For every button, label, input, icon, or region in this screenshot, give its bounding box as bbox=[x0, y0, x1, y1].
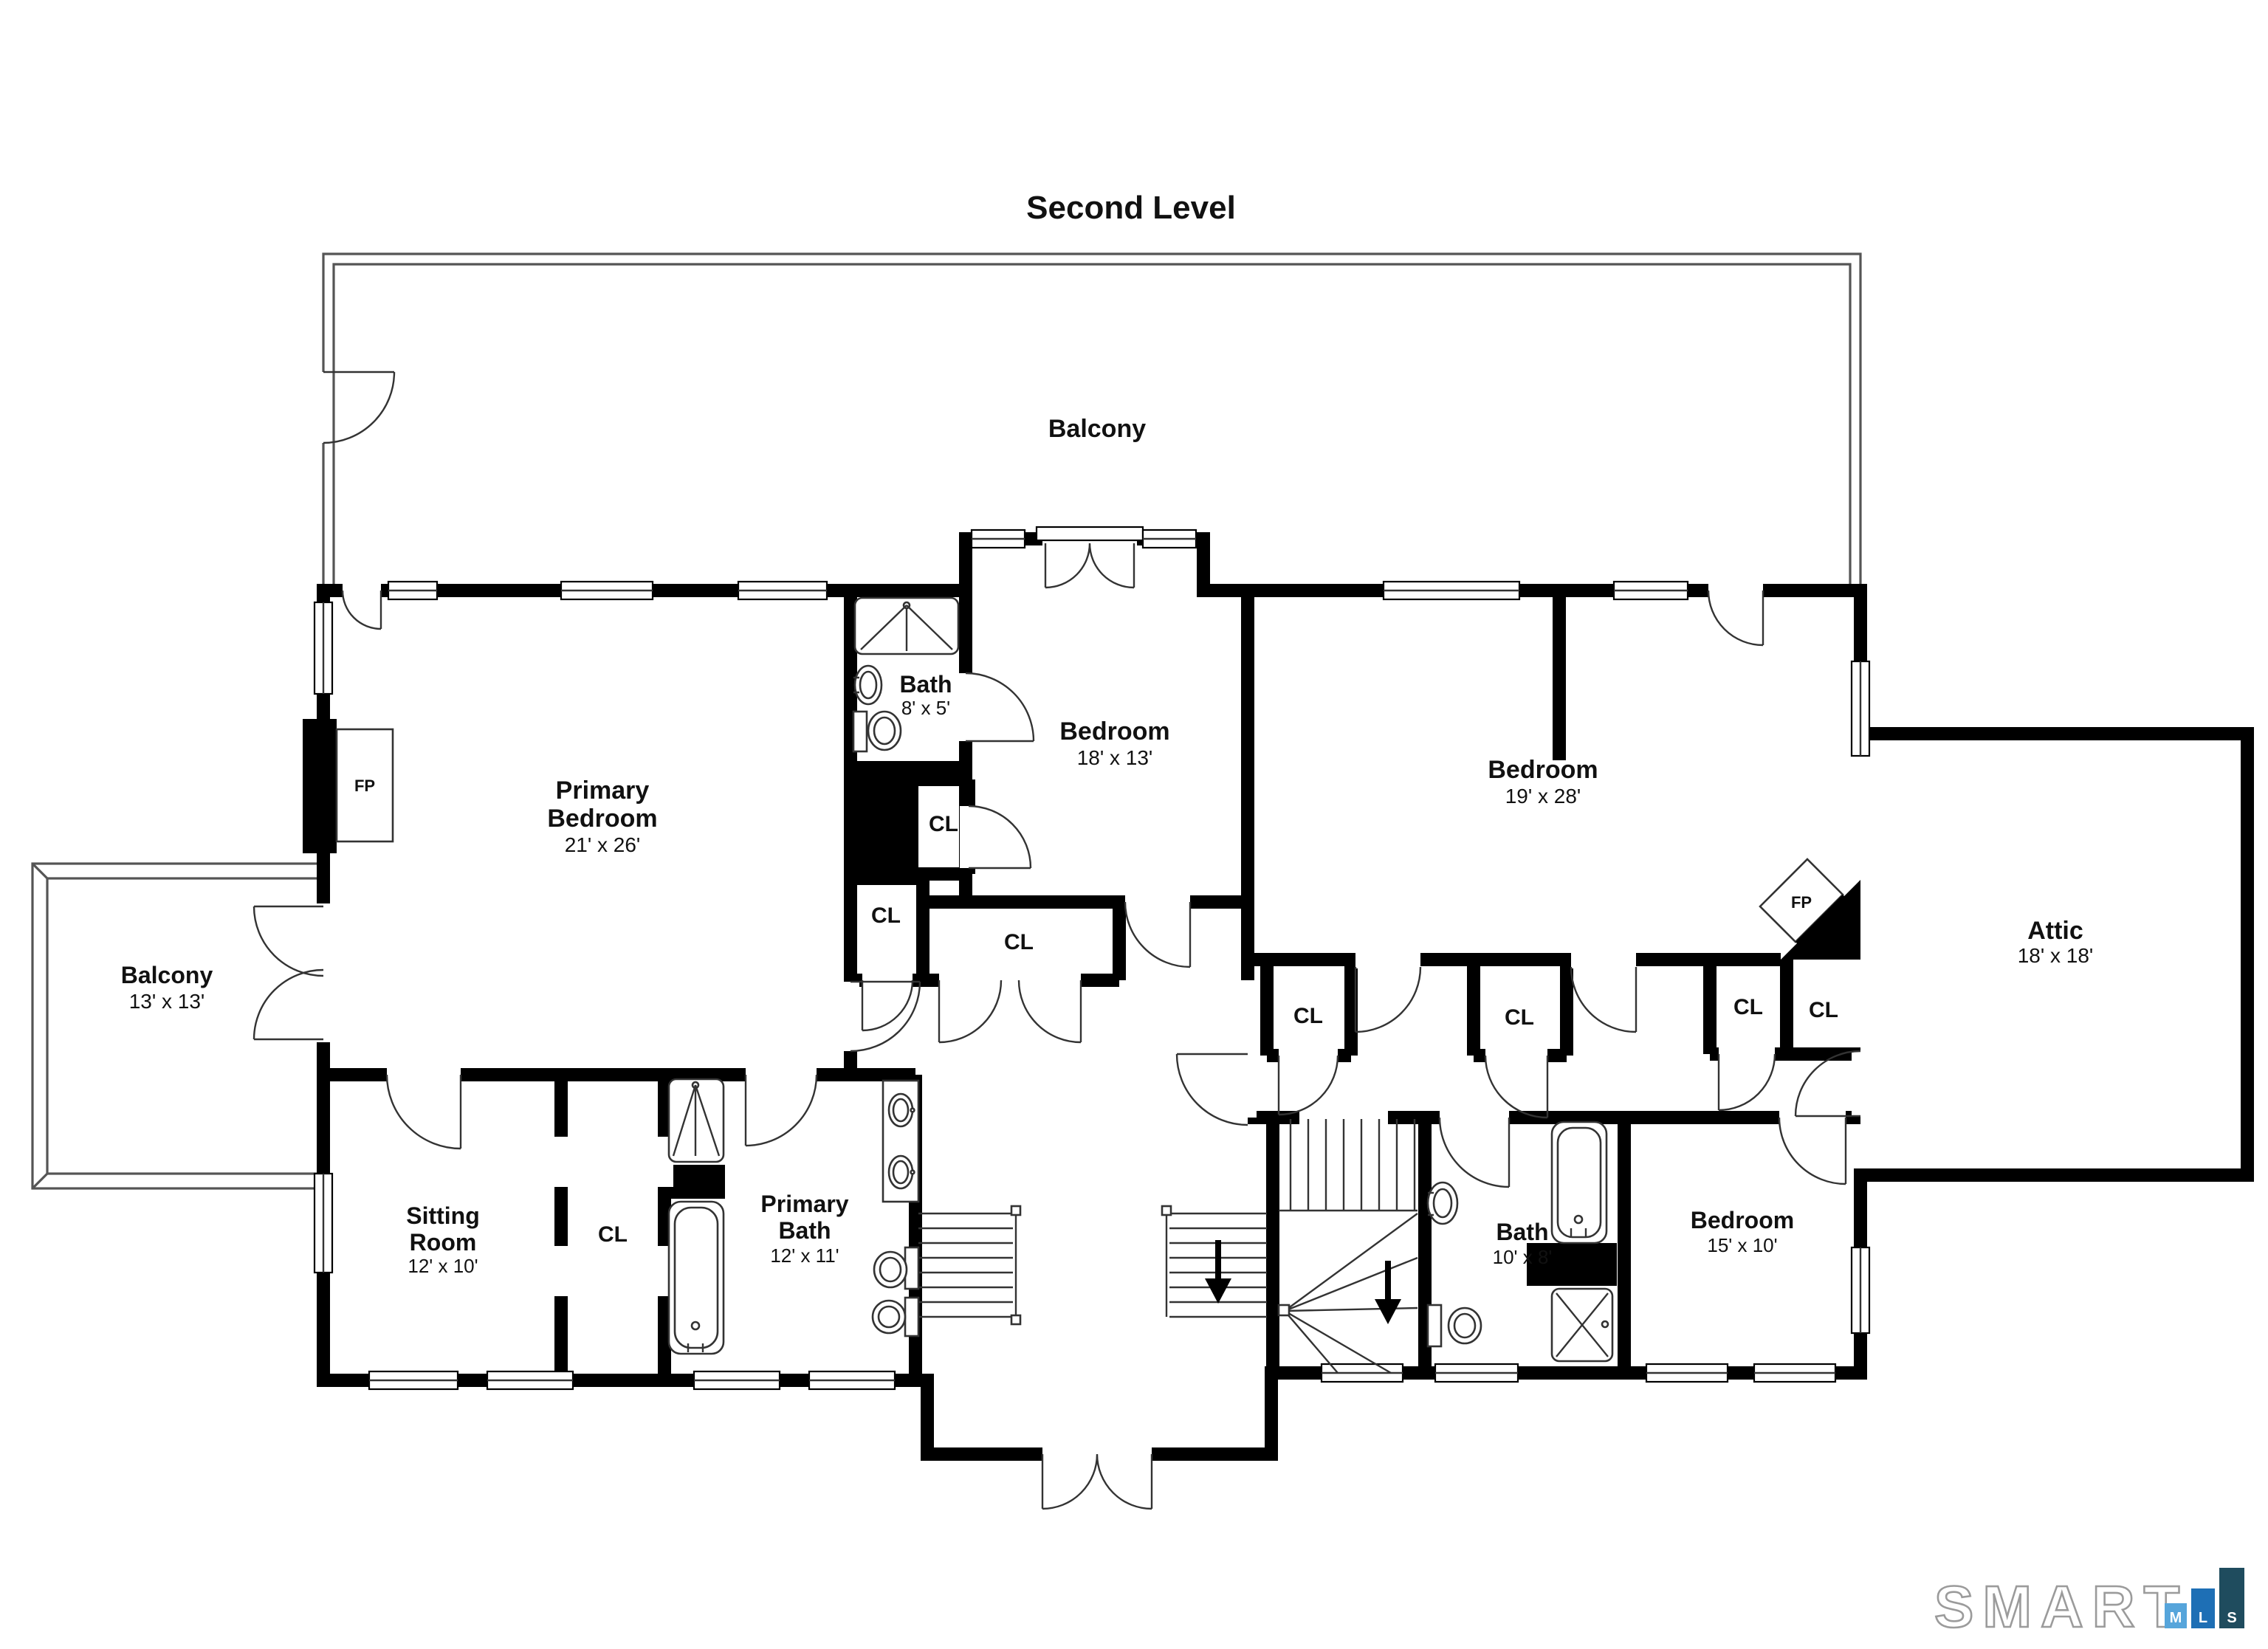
room-label-balcony-top: Balcony bbox=[1048, 415, 1146, 443]
window bbox=[972, 530, 1025, 548]
room-dims-balcony-left: 13' x 13' bbox=[129, 990, 205, 1013]
window bbox=[487, 1371, 573, 1389]
svg-text:Bedroom: Bedroom bbox=[1488, 756, 1598, 784]
room-primary-bedroom: Primary Bedroom 21' x 26' bbox=[547, 777, 657, 856]
smartmls-logo: SMART M L S bbox=[1934, 1568, 2244, 1639]
svg-text:Sitting: Sitting bbox=[406, 1202, 480, 1229]
svg-text:8' x 5': 8' x 5' bbox=[901, 697, 950, 719]
window bbox=[561, 582, 653, 599]
room-primary-bath: Primary Bath 12' x 11' bbox=[760, 1191, 848, 1267]
window bbox=[1852, 1247, 1869, 1333]
window bbox=[1384, 582, 1519, 599]
chimney-chase bbox=[850, 768, 918, 878]
room-bedroom-15: Bedroom 15' x 10' bbox=[1691, 1207, 1794, 1256]
fireplace-primary: FP bbox=[303, 719, 393, 853]
svg-text:Primary: Primary bbox=[556, 777, 650, 805]
sink bbox=[1428, 1182, 1457, 1224]
closet-label: CL bbox=[1809, 998, 1838, 1022]
bathtub bbox=[1552, 1122, 1606, 1243]
window bbox=[1143, 530, 1196, 548]
closet-label: CL bbox=[929, 812, 958, 836]
svg-text:15' x 10': 15' x 10' bbox=[1707, 1234, 1777, 1256]
door-swing bbox=[1355, 967, 1420, 1032]
fireplace-bedroom: FP bbox=[1760, 859, 1860, 960]
room-bedroom-19: Bedroom 19' x 28' bbox=[1488, 756, 1598, 808]
svg-text:Bedroom: Bedroom bbox=[1691, 1207, 1794, 1233]
svg-text:Bedroom: Bedroom bbox=[1059, 717, 1169, 746]
window bbox=[369, 1371, 458, 1389]
logo-word: SMART bbox=[1934, 1574, 2188, 1639]
balcony-railing-inner bbox=[47, 878, 323, 1174]
fireplace-label: FP bbox=[354, 777, 375, 795]
closet-label: CL bbox=[1505, 1005, 1534, 1030]
railing-miter bbox=[32, 864, 47, 1188]
shower bbox=[1552, 1289, 1612, 1361]
room-sitting: Sitting Room 12' x 10' bbox=[406, 1202, 480, 1277]
door-swing bbox=[966, 673, 1034, 741]
vanity-sinks bbox=[883, 1081, 918, 1202]
door-swing bbox=[746, 1075, 817, 1146]
window bbox=[315, 602, 332, 694]
door-swing bbox=[850, 982, 920, 1051]
door-swing bbox=[387, 1075, 461, 1149]
floor-plan-page: Second Level Balcony Balcony 13' x 13' bbox=[0, 0, 2268, 1649]
svg-text:18' x 18': 18' x 18' bbox=[2018, 944, 2094, 967]
toilet bbox=[1428, 1305, 1481, 1346]
logo-letter-s: S bbox=[2227, 1610, 2236, 1626]
svg-text:12' x 10': 12' x 10' bbox=[408, 1255, 478, 1277]
balcony-left: Balcony 13' x 13' bbox=[32, 864, 323, 1188]
door-swing bbox=[1440, 1118, 1509, 1187]
closet-label: CL bbox=[1293, 1004, 1323, 1028]
window bbox=[1754, 1364, 1835, 1382]
room-bath-small: Bath 8' x 5' bbox=[899, 671, 952, 719]
svg-text:10' x 8': 10' x 8' bbox=[1493, 1246, 1553, 1268]
window bbox=[315, 1174, 332, 1273]
sink bbox=[853, 666, 882, 704]
window bbox=[388, 582, 437, 599]
window bbox=[694, 1371, 780, 1389]
door-swing bbox=[1485, 1056, 1547, 1118]
floor-plan: Second Level Balcony Balcony 13' x 13' bbox=[0, 0, 2268, 1649]
svg-text:Bath: Bath bbox=[1496, 1219, 1548, 1245]
svg-text:Room: Room bbox=[410, 1229, 477, 1256]
toilet bbox=[874, 1247, 918, 1289]
closet-labels: CL CL CL CL CL CL CL CL bbox=[598, 812, 1838, 1247]
room-bath-10: Bath 10' x 8' bbox=[1493, 1219, 1553, 1268]
window bbox=[1614, 582, 1688, 599]
room-label-balcony-left: Balcony bbox=[121, 962, 213, 988]
french-doors bbox=[254, 906, 323, 1039]
exterior-walls bbox=[323, 539, 2247, 1454]
svg-text:Bath: Bath bbox=[899, 671, 952, 698]
window bbox=[809, 1371, 895, 1389]
room-bedroom-18: Bedroom 18' x 13' bbox=[1059, 717, 1169, 769]
double-door bbox=[1037, 527, 1143, 588]
shower bbox=[669, 1079, 724, 1162]
svg-text:21' x 26': 21' x 26' bbox=[565, 833, 641, 856]
svg-text:19' x 28': 19' x 28' bbox=[1505, 785, 1581, 808]
svg-text:12' x 11': 12' x 11' bbox=[770, 1245, 839, 1267]
closet-label: CL bbox=[871, 903, 901, 928]
chimney-chase bbox=[667, 1165, 725, 1199]
staircase-back-winder bbox=[1279, 1119, 1417, 1373]
svg-text:Bath: Bath bbox=[778, 1217, 831, 1244]
double-door bbox=[939, 980, 1081, 1042]
staircase-upper-flight bbox=[1162, 1206, 1267, 1317]
svg-text:Bedroom: Bedroom bbox=[547, 805, 657, 833]
staircase-main bbox=[918, 1206, 1020, 1324]
window bbox=[1646, 1364, 1728, 1382]
door-gap bbox=[317, 372, 331, 443]
closet-label: CL bbox=[598, 1222, 628, 1247]
door-swing bbox=[1125, 902, 1190, 967]
logo-letter-l: L bbox=[2199, 1610, 2207, 1626]
shower bbox=[855, 598, 958, 654]
toilet bbox=[873, 1298, 918, 1336]
window bbox=[738, 582, 827, 599]
door-swing bbox=[1571, 967, 1636, 1032]
svg-text:Attic: Attic bbox=[2027, 917, 2083, 945]
closet-label: CL bbox=[1004, 930, 1034, 954]
door-swing bbox=[1795, 1051, 1860, 1116]
svg-text:Primary: Primary bbox=[760, 1191, 848, 1217]
room-attic: Attic 18' x 18' bbox=[2018, 917, 2094, 967]
toilet bbox=[853, 712, 901, 751]
logo-letter-m: M bbox=[2170, 1610, 2182, 1626]
page-title: Second Level bbox=[1026, 190, 1236, 226]
door-swing bbox=[1779, 1118, 1846, 1184]
window bbox=[1435, 1364, 1518, 1382]
fireplace-label: FP bbox=[1791, 893, 1812, 912]
stair-down-arrow bbox=[1375, 1261, 1401, 1324]
svg-text:18' x 13': 18' x 13' bbox=[1077, 746, 1153, 769]
balcony-railing bbox=[32, 864, 323, 1188]
door-swing bbox=[969, 806, 1031, 868]
closet-label: CL bbox=[1733, 995, 1763, 1019]
window bbox=[1852, 661, 1869, 756]
door-swing bbox=[1177, 1054, 1248, 1125]
bathtub bbox=[669, 1202, 724, 1354]
